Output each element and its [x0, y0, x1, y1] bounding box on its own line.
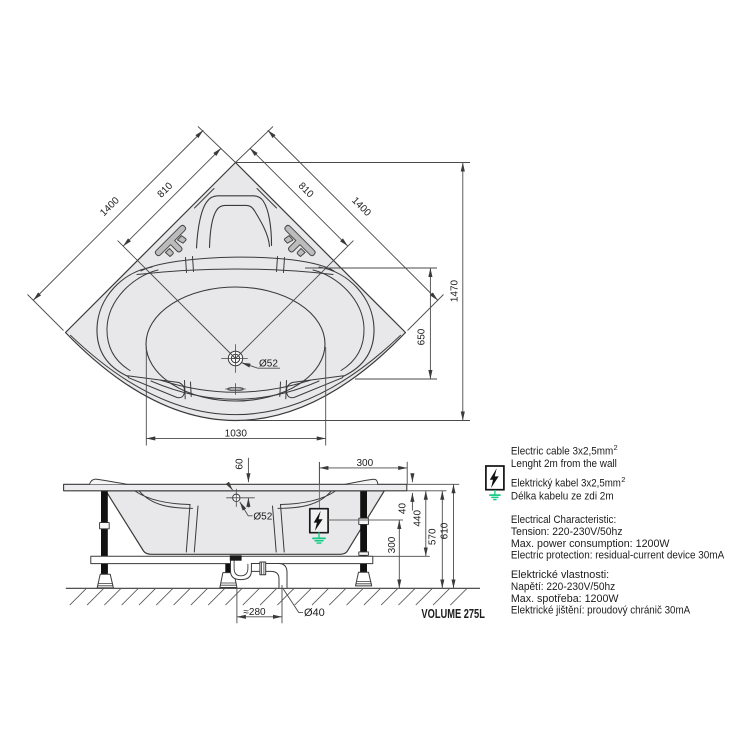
svg-text:300: 300 [387, 536, 398, 553]
svg-text:VOLUME 275L: VOLUME 275L [421, 606, 485, 621]
svg-text:Elektrický kabel 3x2,5mm: Elektrický kabel 3x2,5mm [511, 478, 621, 490]
svg-text:≈280: ≈280 [243, 607, 266, 618]
svg-text:Elektrické vlastnosti:: Elektrické vlastnosti: [511, 569, 609, 581]
svg-text:Tension: 220-230V/50hz: Tension: 220-230V/50hz [511, 526, 623, 538]
svg-text:Elektrické jištění: proudový c: Elektrické jištění: proudový chránič 30m… [511, 605, 691, 617]
svg-text:610: 610 [439, 522, 450, 539]
svg-text:40: 40 [398, 503, 409, 515]
svg-text:Délka kabelu ze zdi 2m: Délka kabelu ze zdi 2m [511, 491, 614, 503]
svg-text:Lenght 2m from the wall: Lenght 2m from the wall [511, 458, 617, 470]
svg-text:1030: 1030 [225, 428, 248, 439]
svg-text:2: 2 [614, 443, 618, 452]
svg-text:440: 440 [412, 510, 423, 527]
svg-text:Max. power consumption: 1200W: Max. power consumption: 1200W [511, 538, 670, 550]
svg-text:Napětí: 220-230V/50hz: Napětí: 220-230V/50hz [511, 581, 616, 593]
svg-text:650: 650 [416, 328, 427, 345]
svg-text:Electric protection: residual-: Electric protection: residual-current de… [511, 550, 725, 562]
svg-text:2: 2 [621, 475, 625, 484]
svg-text:300: 300 [356, 458, 373, 469]
svg-text:Max. spotřeba: 1200W: Max. spotřeba: 1200W [511, 593, 619, 605]
svg-text:Electric cable 3x2,5mm: Electric cable 3x2,5mm [511, 446, 613, 458]
svg-text:Ø40: Ø40 [304, 607, 325, 619]
svg-text:570: 570 [428, 528, 439, 545]
svg-text:1470: 1470 [450, 279, 461, 302]
svg-text:60: 60 [234, 458, 245, 470]
svg-text:Electrical Characteristic:: Electrical Characteristic: [511, 514, 616, 526]
svg-text:Ø52: Ø52 [253, 511, 272, 522]
svg-text:Ø52: Ø52 [259, 358, 278, 369]
